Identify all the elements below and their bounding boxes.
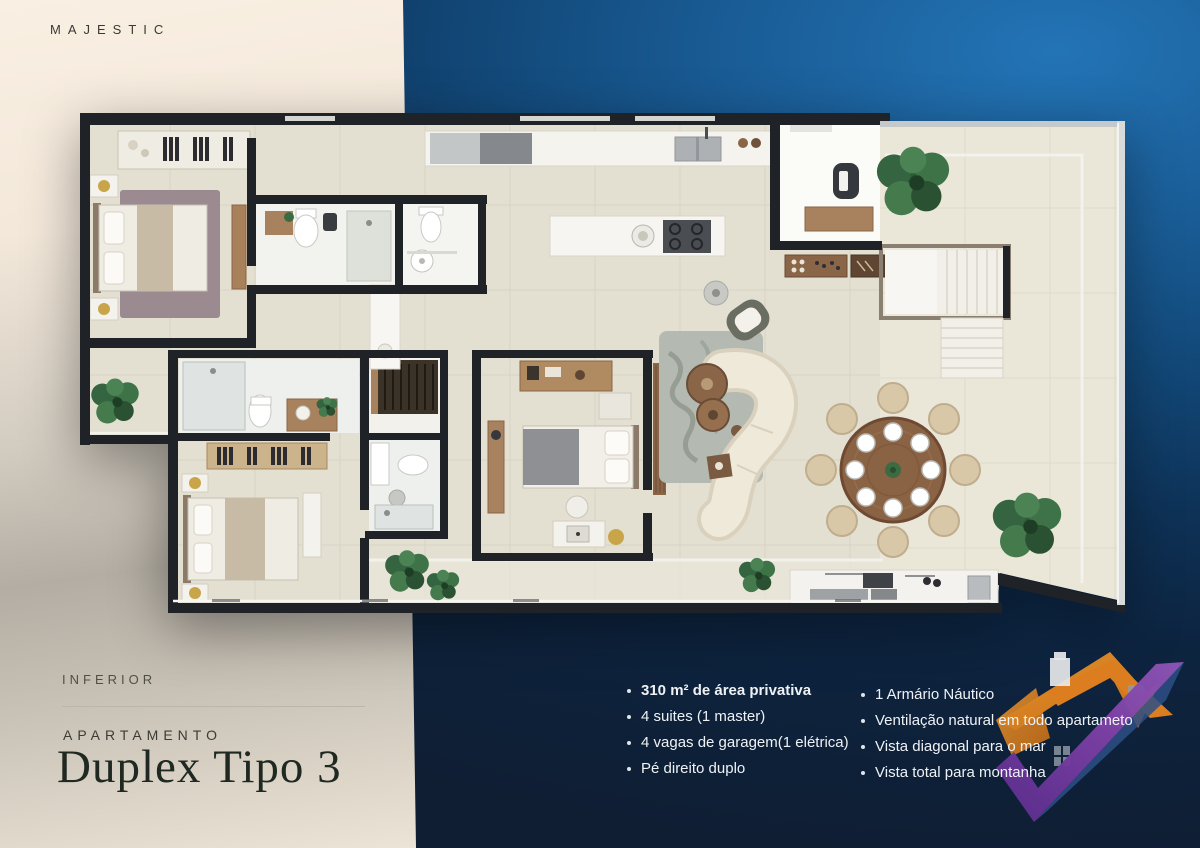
- feature-item: 1 Armário Náutico: [861, 685, 1181, 704]
- feature-item: Vista total para montanha: [861, 763, 1181, 782]
- master-console: [232, 205, 246, 289]
- divider-line: [62, 706, 365, 707]
- feature-item: 4 suites (1 master): [627, 707, 877, 726]
- feature-item: 310 m² de área privativa: [627, 681, 877, 700]
- brand-logo-text: MAJESTIC: [50, 22, 170, 37]
- cooktop-icon: [663, 220, 711, 253]
- bullet-icon: [861, 745, 865, 749]
- level-label: INFERIOR: [62, 672, 156, 687]
- master-bathroom: [256, 204, 395, 285]
- floor-plan: [75, 113, 1135, 625]
- bullet-icon: [627, 689, 631, 693]
- feature-list-right: 1 Armário Náutico Ventilação natural em …: [861, 685, 1181, 789]
- feature-item: Pé direito duplo: [627, 759, 877, 778]
- page-title: Duplex Tipo 3: [57, 740, 342, 794]
- bullet-icon: [627, 767, 631, 771]
- gold-lamp-icon: [98, 303, 110, 315]
- gold-lamp-icon: [189, 587, 201, 599]
- bullet-icon: [627, 741, 631, 745]
- dining-area: [806, 383, 980, 557]
- bar-sideboard: [785, 255, 885, 277]
- bullet-icon: [861, 693, 865, 697]
- lavabo-bathroom: [403, 204, 478, 285]
- gold-lamp-icon: [189, 477, 201, 489]
- nautical-storage-room: [779, 125, 880, 243]
- feature-item: Ventilação natural em todo apartameto: [861, 711, 1181, 730]
- bullet-icon: [861, 719, 865, 723]
- suite2-bathroom: [179, 359, 359, 433]
- bullet-icon: [861, 771, 865, 775]
- feature-list-left: 310 m² de área privativa 4 suites (1 mas…: [627, 681, 877, 785]
- gold-stool-icon: [608, 529, 624, 545]
- bullet-icon: [627, 715, 631, 719]
- feature-item: Vista diagonal para o mar: [861, 737, 1181, 756]
- gold-lamp-icon: [98, 180, 110, 192]
- feature-item: 4 vagas de garagem(1 elétrica): [627, 733, 877, 752]
- suite3-bathroom: [369, 440, 440, 531]
